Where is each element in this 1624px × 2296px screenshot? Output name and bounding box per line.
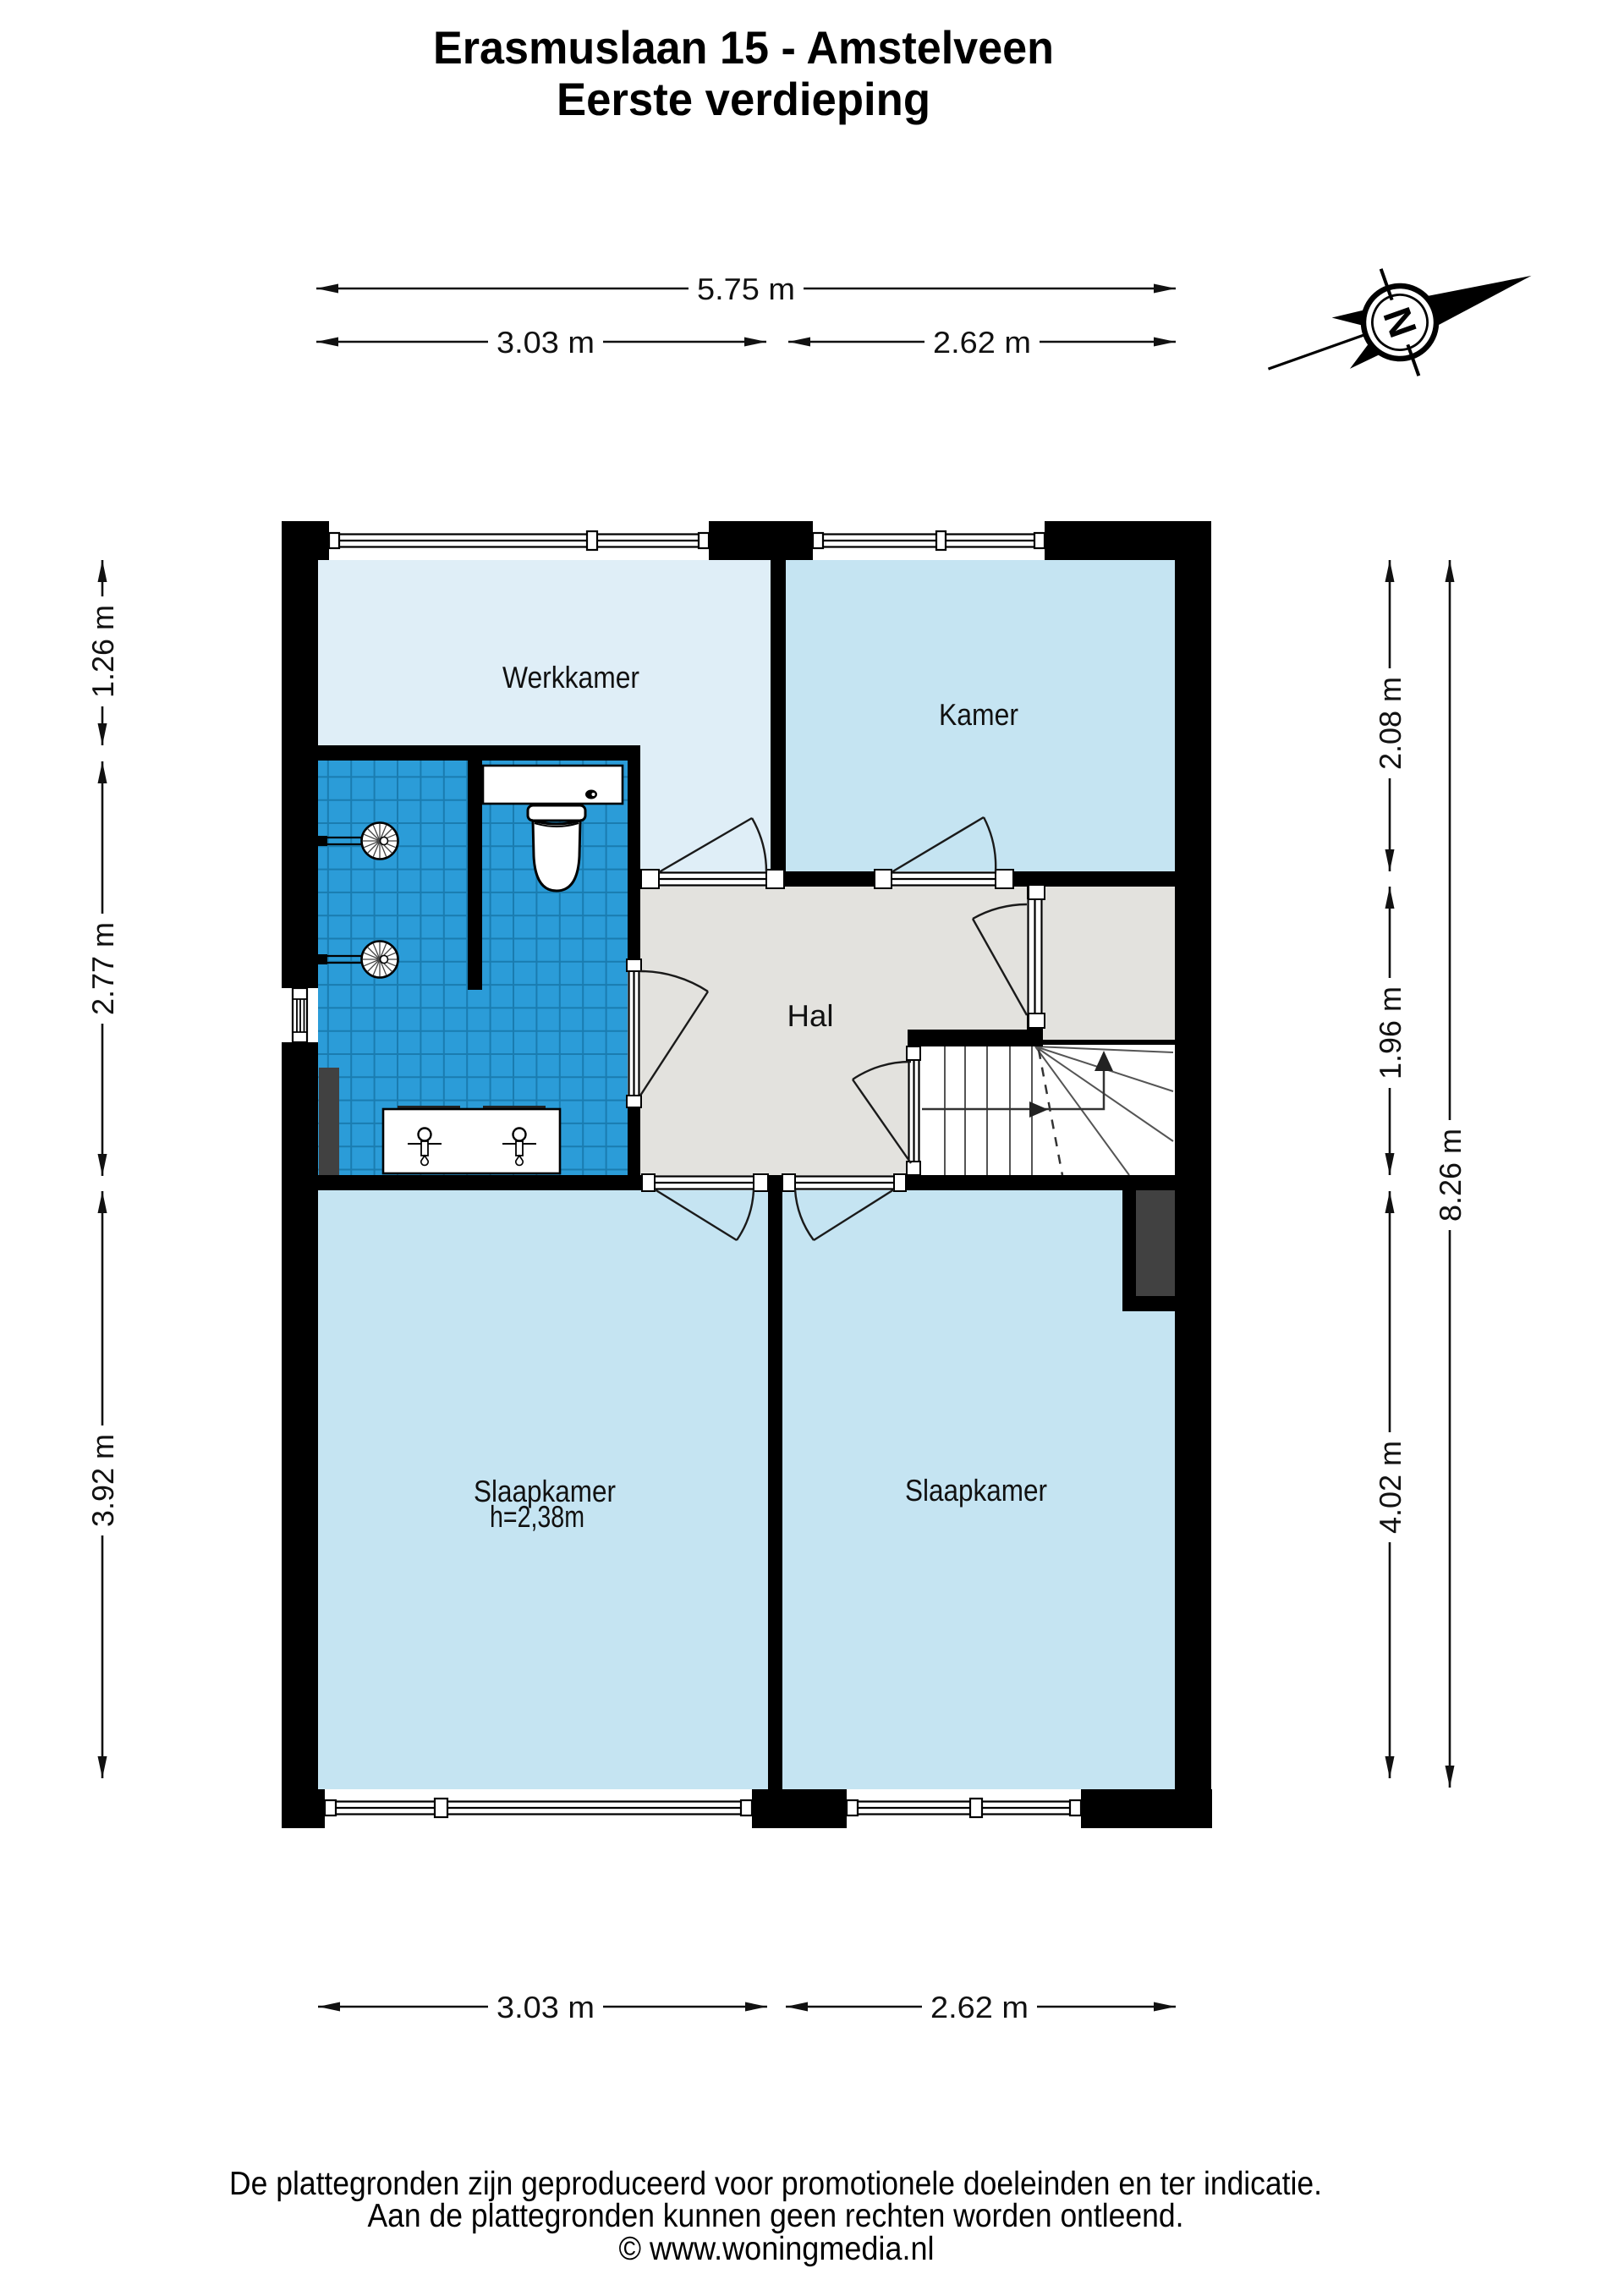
svg-text:3.03 m: 3.03 m	[497, 325, 595, 360]
svg-text:Aan de plattegronden kunnen ge: Aan de plattegronden kunnen geen rechten…	[368, 2198, 1184, 2234]
svg-text:Slaapkamer: Slaapkamer	[905, 1473, 1047, 1508]
svg-text:Hal: Hal	[787, 998, 834, 1033]
svg-text:Kamer: Kamer	[939, 697, 1018, 732]
svg-text:2.62 m: 2.62 m	[933, 325, 1031, 360]
svg-text:Eerste verdieping: Eerste verdieping	[557, 74, 930, 125]
svg-text:3.92 m: 3.92 m	[85, 1434, 120, 1527]
svg-text:2.62 m: 2.62 m	[930, 1990, 1029, 2024]
svg-text:3.03 m: 3.03 m	[497, 1990, 595, 2024]
svg-text:8.26 m: 8.26 m	[1433, 1129, 1468, 1222]
svg-text:h=2,38m: h=2,38m	[490, 1499, 584, 1534]
svg-text:Werkkamer: Werkkamer	[502, 660, 639, 695]
svg-text:4.02 m: 4.02 m	[1373, 1441, 1407, 1534]
svg-text:2.08 m: 2.08 m	[1373, 677, 1407, 770]
svg-text:1.96 m: 1.96 m	[1373, 986, 1407, 1079]
svg-text:2.77 m: 2.77 m	[85, 922, 120, 1015]
svg-text:© www.woningmedia.nl: © www.woningmedia.nl	[619, 2231, 935, 2267]
svg-text:5.75 m: 5.75 m	[697, 272, 795, 306]
svg-text:De plattegronden zijn geproduc: De plattegronden zijn geproduceerd voor …	[229, 2166, 1322, 2202]
svg-text:1.26 m: 1.26 m	[85, 605, 120, 698]
svg-text:Erasmuslaan 15 - Amstelveen: Erasmuslaan 15 - Amstelveen	[433, 22, 1054, 74]
